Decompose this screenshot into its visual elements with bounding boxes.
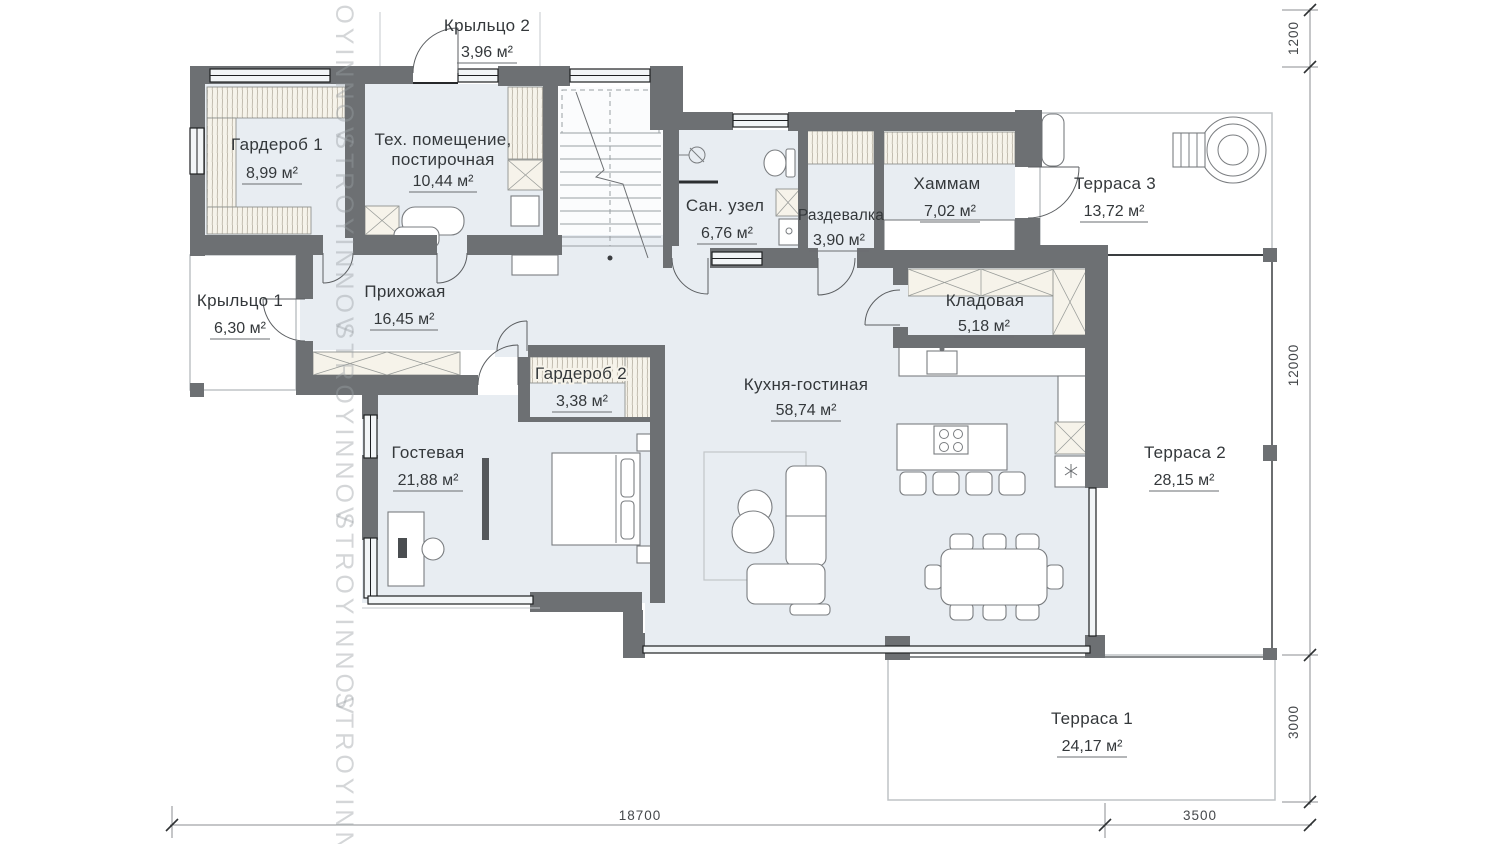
stair-start-dot (608, 256, 613, 261)
window (364, 415, 377, 458)
watermark-text: STROYINNOV (330, 132, 358, 337)
svg-text:6,30 м²: 6,30 м² (214, 320, 267, 337)
svg-text:Гардероб 2: Гардероб 2 (535, 364, 627, 383)
window (364, 538, 377, 598)
svg-text:Хаммам: Хаммам (913, 174, 980, 193)
svg-text:24,17 м²: 24,17 м² (1062, 738, 1123, 755)
svg-text:Терраса 1: Терраса 1 (1051, 709, 1133, 728)
cabinet-x-icon (1055, 422, 1087, 454)
floor-plan: Гардероб 18,99 м² Тех. помещение,постиро… (0, 0, 1500, 844)
column (1263, 648, 1277, 660)
fridge-icon (1055, 456, 1087, 487)
watermark-text: STROYINNOV (330, 512, 358, 717)
wardrobe1-shelf (207, 207, 311, 234)
svg-text:3,96 м²: 3,96 м² (461, 44, 514, 61)
svg-text:28,15 м²: 28,15 м² (1154, 472, 1215, 489)
dim-terrace-width: 3500 (1183, 808, 1217, 823)
glass-wall (643, 646, 1090, 653)
svg-text:8,99 м²: 8,99 м² (246, 165, 299, 182)
svg-text:Терраса 3: Терраса 3 (1074, 174, 1156, 193)
svg-text:58,74 м²: 58,74 м² (776, 402, 837, 419)
wardrobe1-shelf (207, 118, 236, 207)
dressing-closet (806, 131, 874, 164)
watermark-text: STROYINNOV (330, 322, 358, 527)
tech-cabinet-x (508, 160, 543, 190)
window (190, 128, 204, 174)
window (570, 69, 650, 82)
svg-text:Тех. помещение,: Тех. помещение, (374, 130, 511, 149)
window (712, 252, 762, 265)
svg-text:Прихожая: Прихожая (364, 282, 445, 301)
floor-plan-page: Гардероб 18,99 м² Тех. помещение,постиро… (0, 0, 1500, 844)
bar-stool-icon (966, 472, 992, 495)
dim-porch-offset: 1200 (1286, 21, 1301, 55)
svg-text:Раздевалка: Раздевалка (798, 207, 884, 224)
column (1263, 445, 1277, 461)
glass-wall (1089, 488, 1096, 636)
svg-text:Крыльцо 2: Крыльцо 2 (444, 16, 530, 35)
svg-text:3,90 м²: 3,90 м² (813, 232, 866, 249)
svg-text:Крыльцо 1: Крыльцо 1 (197, 291, 283, 310)
svg-text:16,45 м²: 16,45 м² (374, 311, 435, 328)
svg-text:7,02 м²: 7,02 м² (924, 203, 977, 220)
terrace-1-area (888, 657, 1275, 800)
svg-text:10,44 м²: 10,44 м² (413, 173, 474, 190)
washing-machine-icon (365, 206, 399, 235)
column (1263, 248, 1277, 262)
svg-text:3,38 м²: 3,38 м² (556, 393, 609, 410)
hall-console-icon (512, 255, 558, 275)
svg-text:Гостевая: Гостевая (392, 443, 465, 462)
coffee-table-icon (732, 511, 774, 553)
terrace-bench-icon (1042, 114, 1064, 166)
desk-chair-icon (422, 538, 444, 560)
hammam-bench-top (884, 132, 1015, 164)
dim-terrace-depth: 3000 (1286, 705, 1301, 739)
room-label-porch2: Крыльцо 23,96 м² (444, 16, 530, 63)
glass-wall (362, 596, 540, 608)
bed-icon (552, 434, 653, 563)
watermarks: STROYINNOV STROYINNOV STROYINNOV STROYIN… (330, 0, 358, 844)
column (623, 633, 645, 658)
svg-text:постирочная: постирочная (391, 150, 494, 169)
bar-stool-icon (999, 472, 1025, 495)
toilet-icon (764, 149, 795, 177)
svg-text:6,76 м²: 6,76 м² (701, 225, 754, 242)
porch-column (190, 383, 204, 397)
svg-text:Терраса 2: Терраса 2 (1144, 443, 1226, 462)
tech-closet (508, 87, 543, 159)
bar-stool-icon (900, 472, 926, 495)
svg-text:Сан. узел: Сан. узел (686, 196, 764, 215)
svg-text:Гардероб 1: Гардероб 1 (231, 135, 323, 154)
watermark-text: STROYINNOV (330, 0, 358, 148)
bar-stool-icon (933, 472, 959, 495)
dim-house-width: 18700 (619, 808, 662, 823)
svg-text:5,18 м²: 5,18 м² (958, 318, 1011, 335)
tall-cabinet-x (1053, 269, 1087, 335)
tv-icon (482, 458, 489, 540)
svg-text:21,88 м²: 21,88 м² (398, 472, 459, 489)
window (733, 114, 788, 127)
dim-house-depth: 12000 (1286, 344, 1301, 387)
svg-text:13,72 м²: 13,72 м² (1084, 203, 1145, 220)
wardrobe1-shelf (207, 87, 345, 118)
laundry-sink-icon (511, 196, 539, 226)
window (210, 69, 330, 82)
hammam-bench-bottom (884, 220, 1015, 253)
window (458, 69, 498, 82)
svg-text:Кладовая: Кладовая (946, 291, 1025, 310)
watermark-text: STROYINNOV (330, 692, 358, 844)
svg-text:Кухня-гостиная: Кухня-гостиная (744, 375, 868, 394)
